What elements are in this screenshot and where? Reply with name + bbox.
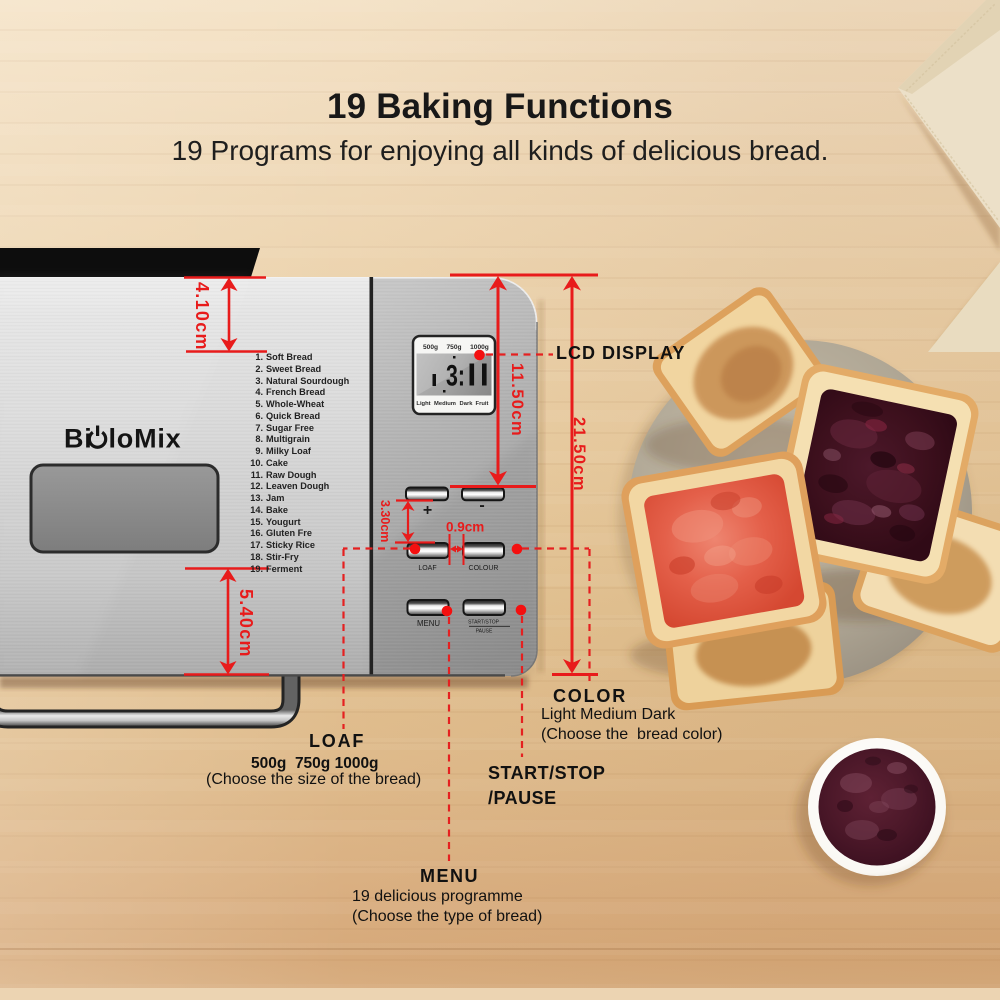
- svg-text:11.50cm: 11.50cm: [508, 363, 526, 437]
- svg-text:21.50cm: 21.50cm: [570, 417, 588, 492]
- svg-text:3.30cm: 3.30cm: [378, 500, 392, 542]
- svg-text:4.10cm: 4.10cm: [192, 282, 212, 351]
- svg-text:0.9cm: 0.9cm: [446, 520, 484, 535]
- svg-text:5.40cm: 5.40cm: [236, 589, 256, 658]
